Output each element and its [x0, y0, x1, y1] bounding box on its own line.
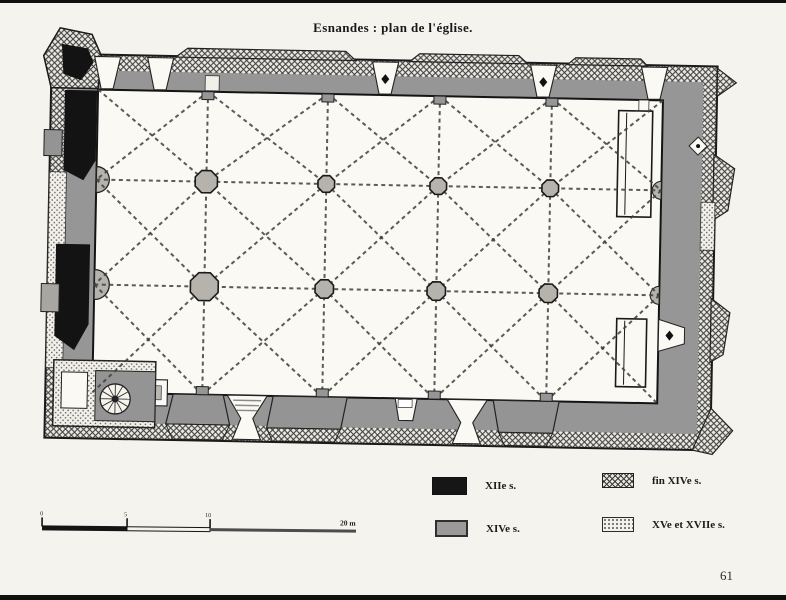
- wall-respond: [202, 92, 214, 100]
- pier-column: [190, 272, 218, 300]
- wall-respond: [540, 393, 552, 401]
- scale-tick-0: 0: [40, 511, 43, 517]
- wall-respond: [322, 94, 334, 102]
- pier-column: [427, 282, 446, 301]
- altar-north: [617, 111, 653, 218]
- scale-tick-5: 5: [124, 512, 127, 518]
- pier-column: [318, 175, 335, 192]
- wall-respond: [316, 389, 328, 397]
- page-number: 61: [720, 568, 733, 584]
- ne-corner-buttress: [717, 68, 737, 96]
- wall-respond: [428, 391, 440, 399]
- scanned-book-page: Esnandes : plan de l'église.: [0, 0, 786, 600]
- west-tab-lower: [41, 284, 60, 312]
- spiral-staircase: [100, 384, 131, 415]
- pier-column: [430, 178, 447, 195]
- west-tab-upper: [44, 130, 62, 156]
- pier-column: [315, 280, 334, 299]
- pier-column: [539, 284, 558, 303]
- nave-interior: [92, 90, 663, 404]
- altar-south: [615, 319, 646, 388]
- scale-bar: 0 5 10 20 m: [40, 511, 357, 533]
- church-plan-figure: 0 5 10 20 m: [0, 0, 786, 600]
- wall-respond: [196, 386, 208, 394]
- east-wall-stipple: [700, 202, 715, 250]
- nw-porch: [43, 28, 102, 89]
- scale-end-label: 20 m: [340, 518, 356, 527]
- wall-respond: [434, 96, 446, 104]
- pier-column: [195, 170, 218, 193]
- sw-stair-tower: [53, 360, 156, 428]
- plan-body: [36, 28, 740, 455]
- scale-tick-10: 10: [205, 513, 211, 519]
- wall-respond: [546, 98, 558, 106]
- pier-column: [542, 180, 559, 197]
